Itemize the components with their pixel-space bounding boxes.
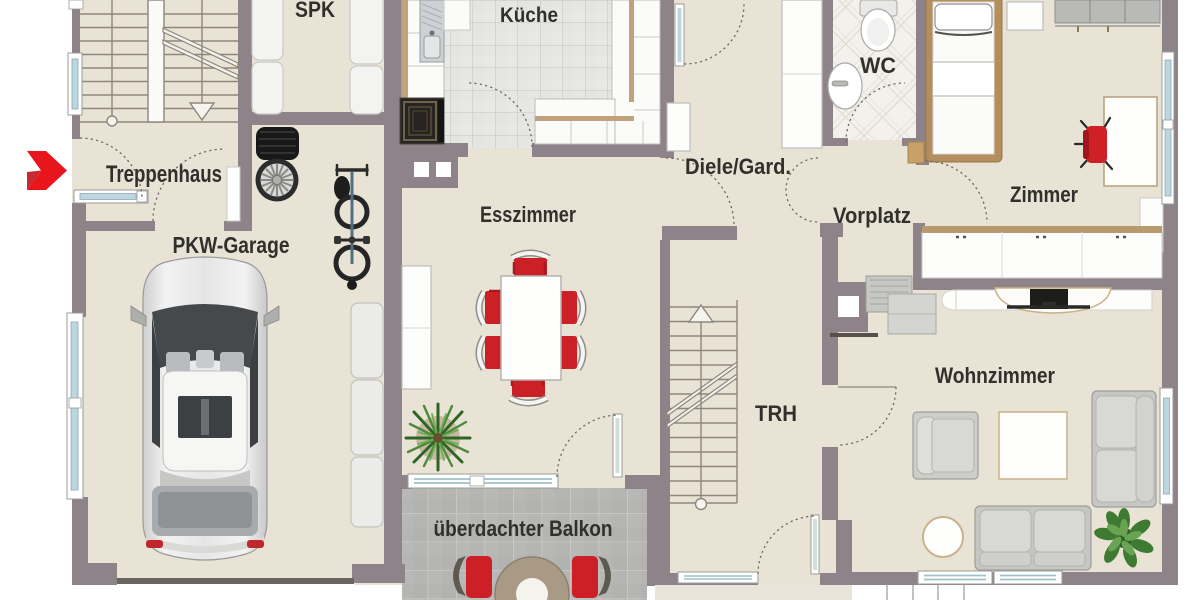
svg-text:Zimmer: Zimmer xyxy=(1010,182,1078,207)
svg-text:WC: WC xyxy=(860,53,896,78)
svg-text:SPK: SPK xyxy=(295,0,335,22)
svg-text:Vorplatz: Vorplatz xyxy=(833,203,911,228)
svg-text:Esszimmer: Esszimmer xyxy=(480,202,576,227)
svg-text:Diele/Gard.: Diele/Gard. xyxy=(685,154,791,179)
svg-text:PKW-Garage: PKW-Garage xyxy=(173,232,290,258)
svg-text:Treppenhaus: Treppenhaus xyxy=(106,161,222,188)
svg-text:Wohnzimmer: Wohnzimmer xyxy=(935,363,1055,388)
svg-text:überdachter Balkon: überdachter Balkon xyxy=(434,516,613,541)
svg-text:Küche: Küche xyxy=(500,4,558,27)
svg-text:TRH: TRH xyxy=(755,401,797,426)
